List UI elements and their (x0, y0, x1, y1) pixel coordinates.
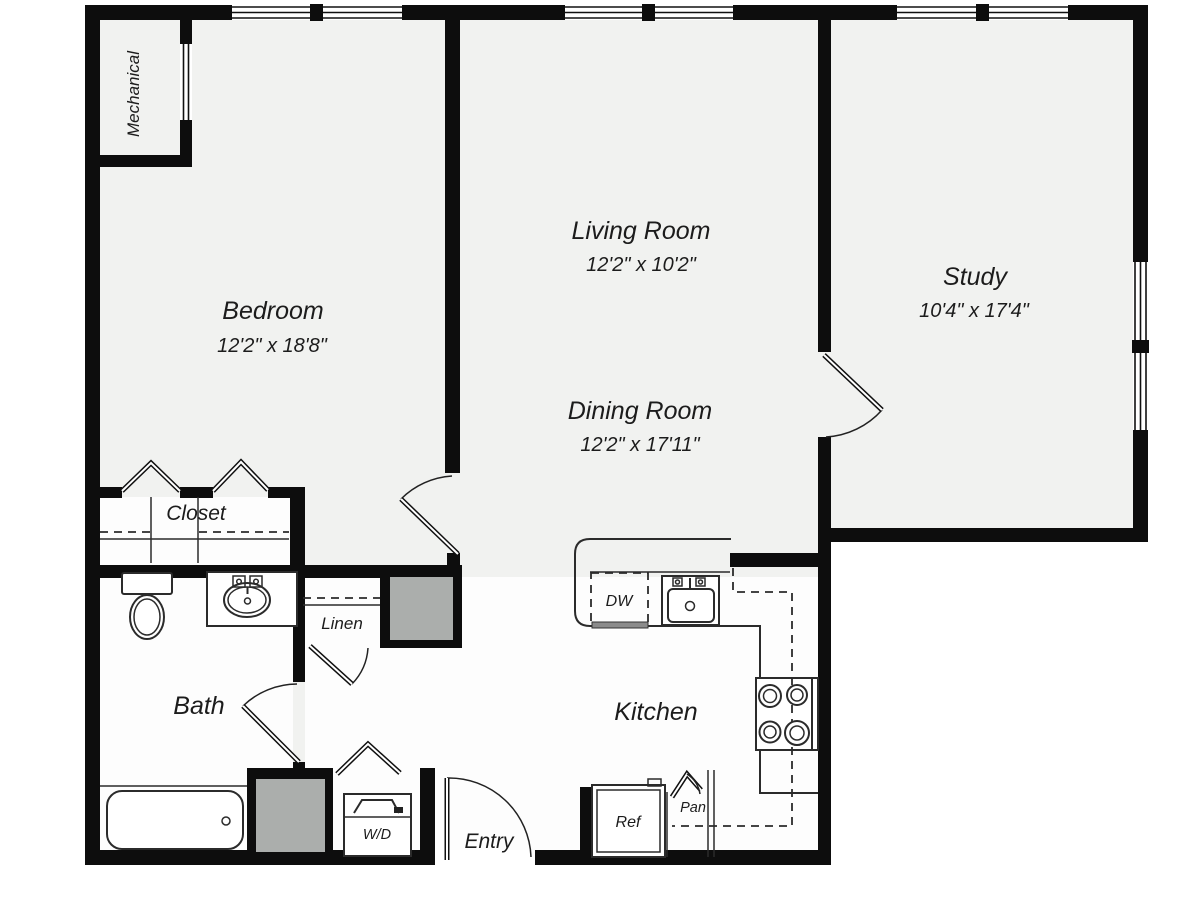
window-top-middle (565, 4, 733, 21)
shaft-2 (247, 768, 333, 860)
shaft-1 (380, 567, 462, 648)
room-label-dining: Dining Room (568, 397, 713, 425)
room-label-kitchen: Kitchen (614, 698, 697, 726)
fixture-label-pantry: Pan (680, 800, 706, 816)
floorplan-page: Mechanical Bedroom 12'2" x 18'8" Living … (0, 0, 1200, 900)
room-label-living: Living Room (572, 217, 711, 245)
room-label-mechanical: Mechanical (124, 50, 143, 137)
fixture-label-dishwasher: DW (606, 593, 635, 610)
fixture-label-washer-dryer: W/D (363, 827, 391, 843)
room-label-bath: Bath (173, 692, 224, 720)
room-label-entry: Entry (464, 830, 515, 853)
floorplan: Mechanical Bedroom 12'2" x 18'8" Living … (0, 0, 1200, 900)
dim-label-dining: 12'2" x 17'11" (580, 434, 700, 456)
room-label-study: Study (943, 263, 1008, 291)
room-label-closet: Closet (166, 502, 227, 525)
room-label-bedroom: Bedroom (222, 297, 323, 325)
fixture-label-refrigerator: Ref (616, 814, 642, 831)
window-study-right (1132, 262, 1149, 430)
dim-label-study: 10'4" x 17'4" (919, 300, 1030, 322)
bathtub-fixture (100, 786, 247, 849)
washer-dryer-fixture (344, 794, 411, 856)
door-mechanical (180, 44, 192, 120)
window-top-left (232, 4, 402, 21)
bath-sink-fixture (207, 572, 297, 626)
dim-label-living: 12'2" x 10'2" (586, 254, 697, 276)
dim-label-bedroom: 12'2" x 18'8" (217, 335, 328, 357)
room-label-linen: Linen (321, 614, 363, 633)
window-top-right (897, 4, 1068, 21)
kitchen-sink-fixture (662, 576, 719, 625)
